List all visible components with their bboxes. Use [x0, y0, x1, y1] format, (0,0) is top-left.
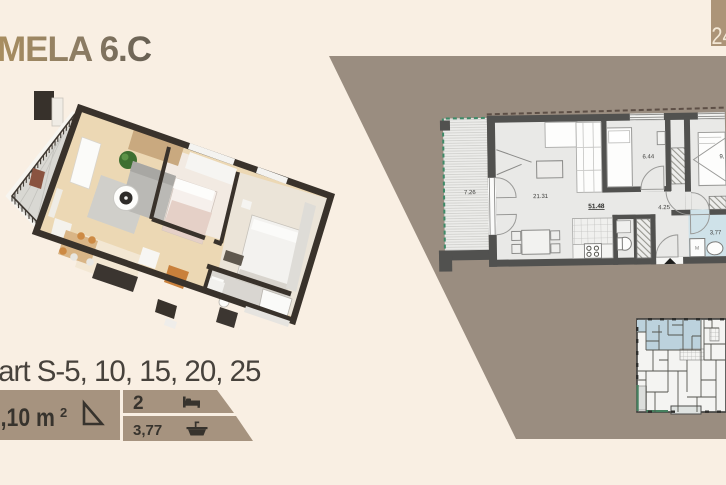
svg-text:21.31: 21.31 — [533, 194, 549, 200]
svg-text:55,10 m: 55,10 m — [0, 403, 55, 431]
svg-text:MELA 6.C: MELA 6.C — [0, 30, 152, 69]
svg-text:3,77: 3,77 — [133, 422, 162, 439]
svg-text:M: M — [695, 246, 699, 252]
svg-text:7.26: 7.26 — [464, 190, 476, 196]
svg-text:51.48: 51.48 — [588, 203, 605, 210]
svg-text:2: 2 — [133, 393, 144, 414]
svg-text:Apart S-5, 10, 15, 20, 25: Apart S-5, 10, 15, 20, 25 — [0, 355, 261, 388]
svg-text:2: 2 — [60, 405, 67, 420]
svg-text:24: 24 — [712, 22, 726, 49]
svg-text:9,: 9, — [719, 154, 724, 160]
svg-text:6.44: 6.44 — [642, 154, 654, 160]
svg-text:3,77: 3,77 — [710, 230, 722, 236]
svg-text:4.25: 4.25 — [658, 205, 670, 211]
